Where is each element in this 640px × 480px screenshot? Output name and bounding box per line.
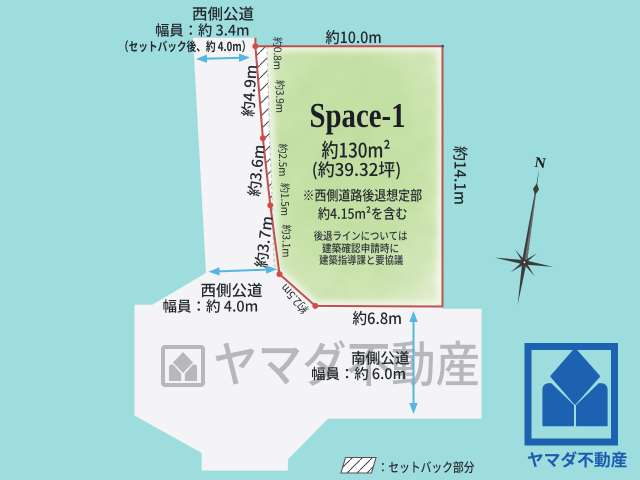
svg-text:Space-1: Space-1 bbox=[310, 96, 406, 135]
